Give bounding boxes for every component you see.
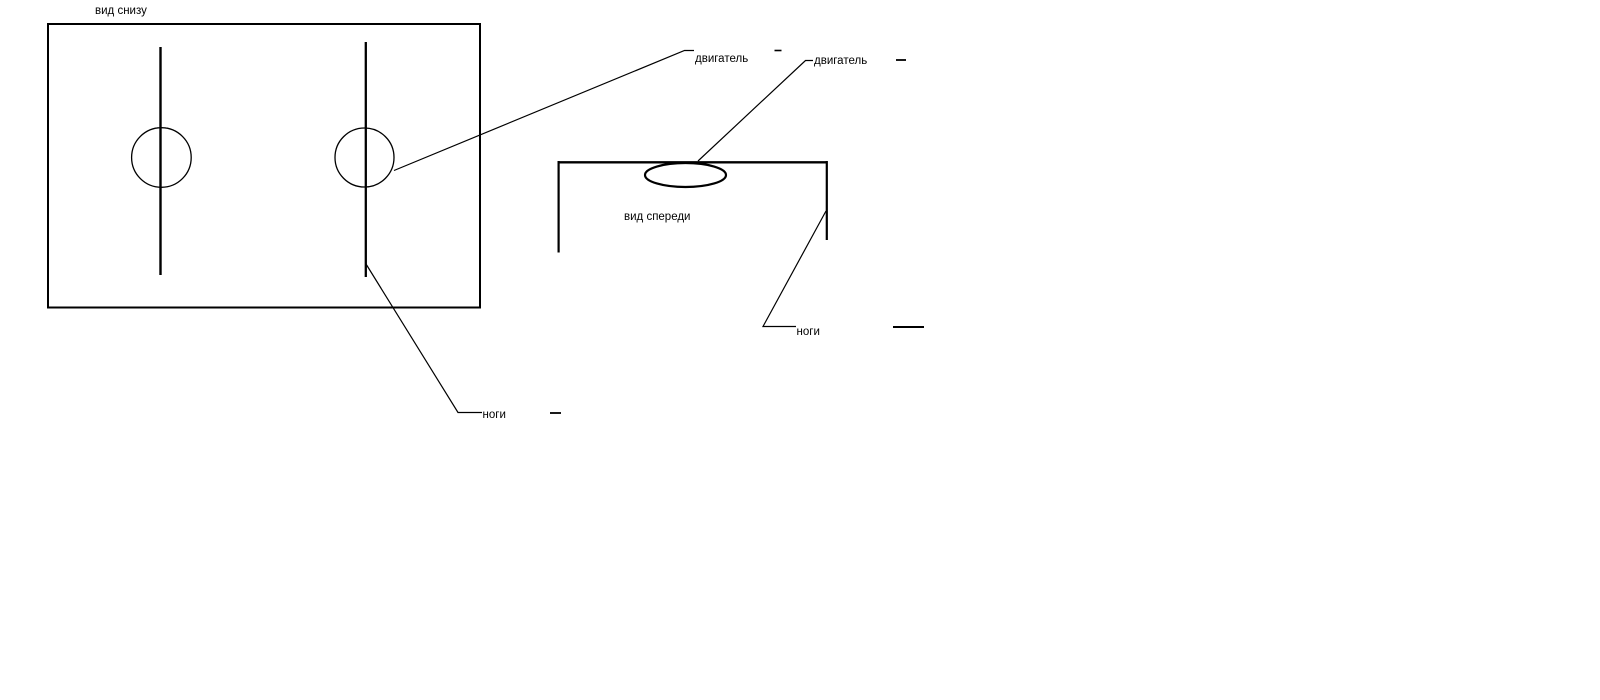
svg-text:вид спереди: вид спереди [624, 211, 690, 223]
svg-text:двигатель: двигатель [814, 55, 867, 67]
svg-text:ноги: ноги [483, 409, 506, 421]
svg-text:вид снизу: вид снизу [95, 5, 147, 17]
svg-text:двигатель: двигатель [695, 53, 748, 65]
svg-text:ноги: ноги [797, 326, 820, 338]
